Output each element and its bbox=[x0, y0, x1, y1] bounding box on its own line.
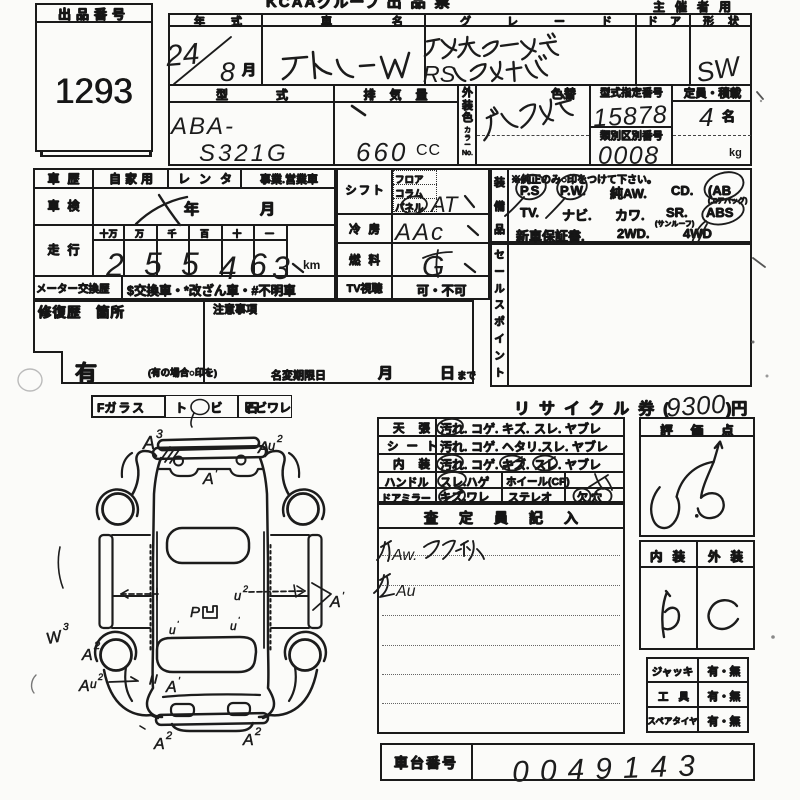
svg-text:15878: 15878 bbox=[592, 101, 668, 133]
svg-text:2: 2 bbox=[254, 726, 261, 738]
svg-text:A: A bbox=[329, 594, 341, 611]
svg-text:Aw.: Aw. bbox=[391, 547, 418, 564]
svg-text:A: A bbox=[165, 679, 177, 696]
svg-text:3: 3 bbox=[272, 250, 290, 286]
svg-text:6: 6 bbox=[249, 247, 267, 283]
svg-text:P: P bbox=[190, 604, 200, 621]
svg-text:u: u bbox=[268, 438, 275, 453]
svg-text:660: 660 bbox=[356, 137, 408, 167]
svg-text:4: 4 bbox=[219, 250, 237, 286]
svg-text:5: 5 bbox=[181, 246, 199, 282]
svg-text:': ' bbox=[177, 620, 179, 629]
svg-text:A: A bbox=[78, 678, 90, 695]
svg-text:AAc: AAc bbox=[393, 219, 445, 246]
svg-text:5: 5 bbox=[144, 246, 162, 282]
svg-text:G: G bbox=[422, 251, 445, 283]
svg-text:2: 2 bbox=[97, 672, 103, 682]
svg-text:A: A bbox=[142, 433, 155, 453]
svg-text:2: 2 bbox=[276, 434, 283, 445]
svg-text:A: A bbox=[242, 732, 254, 749]
svg-text:AT: AT bbox=[429, 192, 459, 217]
svg-text:': ' bbox=[238, 616, 240, 625]
svg-text:24: 24 bbox=[164, 37, 201, 73]
svg-text:u: u bbox=[234, 588, 241, 603]
svg-text:ABA-: ABA- bbox=[169, 113, 235, 140]
svg-text:W: W bbox=[45, 628, 65, 648]
svg-text:A: A bbox=[153, 736, 165, 753]
svg-text:0049143: 0049143 bbox=[512, 749, 707, 789]
svg-text:8: 8 bbox=[220, 57, 235, 87]
svg-text:': ' bbox=[342, 591, 345, 602]
svg-text:SW: SW bbox=[694, 51, 745, 89]
svg-text:4: 4 bbox=[699, 102, 713, 132]
svg-text:': ' bbox=[178, 676, 181, 687]
svg-text:3: 3 bbox=[156, 427, 163, 441]
svg-text:u: u bbox=[169, 623, 176, 637]
svg-text:3: 3 bbox=[63, 622, 69, 633]
svg-text:A: A bbox=[202, 471, 214, 488]
svg-text:2: 2 bbox=[242, 584, 248, 594]
svg-text:2: 2 bbox=[93, 640, 100, 652]
svg-text:0008: 0008 bbox=[598, 142, 660, 170]
svg-text:u: u bbox=[230, 619, 237, 633]
svg-text:9300: 9300 bbox=[665, 389, 727, 423]
svg-text:2: 2 bbox=[105, 247, 124, 283]
svg-text:u: u bbox=[90, 677, 97, 691]
svg-text:A: A bbox=[81, 647, 93, 664]
svg-text:RS: RS bbox=[423, 61, 456, 87]
svg-text:S321G: S321G bbox=[199, 140, 289, 167]
svg-text:': ' bbox=[215, 469, 218, 480]
svg-text:Au: Au bbox=[395, 583, 416, 600]
svg-text:2: 2 bbox=[165, 730, 172, 742]
